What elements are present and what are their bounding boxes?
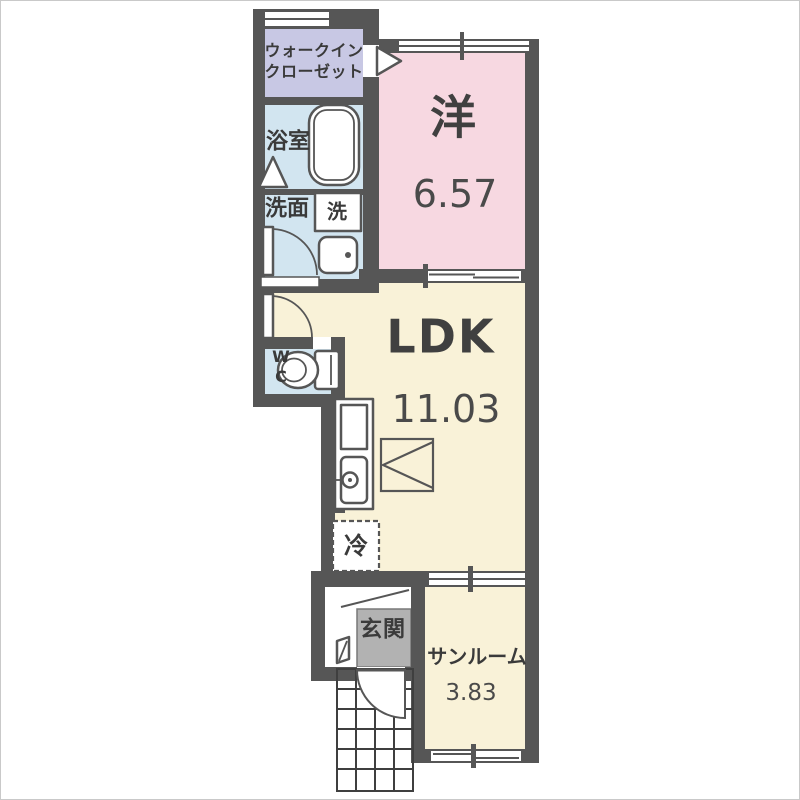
wall	[311, 587, 325, 681]
western-room-area: 6.57	[413, 173, 498, 217]
walk-in-closet-label-line1: ウォークイン	[264, 40, 363, 61]
window-tick	[423, 264, 428, 288]
vanity-faucet-dot	[345, 252, 351, 258]
floorplan: ウォークイン クローゼット 浴室 洗面 洗 洋 6.57 W C LDK 11.…	[0, 0, 800, 800]
western-room	[363, 53, 525, 269]
door-leaf	[263, 294, 273, 338]
toilet-label: W C	[272, 347, 290, 387]
wall	[525, 39, 539, 763]
western-room-label: 洋	[430, 92, 476, 145]
kitchen-stove-box	[341, 405, 367, 449]
wall	[321, 407, 335, 571]
wall	[253, 394, 345, 407]
toilet-label-line1: W	[272, 347, 290, 367]
wall	[253, 97, 379, 105]
washroom-label: 洗面	[265, 196, 309, 221]
toilet-label-line2: C	[272, 367, 290, 387]
vanity-sink-icon	[319, 237, 357, 273]
entrance-label: 玄関	[360, 617, 406, 642]
walk-in-closet-label: ウォークイン クローゼット	[264, 40, 363, 82]
refrigerator-label: 冷	[344, 533, 368, 561]
window-tick	[471, 744, 476, 768]
ldk-label: LDK	[386, 311, 495, 364]
washing-machine-label: 洗	[327, 201, 347, 224]
bathroom-label: 浴室	[266, 129, 310, 154]
faucet-dot	[348, 478, 352, 482]
sliding-door-icon	[427, 271, 521, 281]
window-tick	[460, 32, 464, 60]
door-threshold	[261, 277, 319, 287]
sunroom-area: 3.83	[445, 680, 496, 706]
window-tick	[468, 566, 473, 592]
bathtub-icon	[309, 105, 359, 185]
sunroom-label: サンルーム	[427, 646, 526, 669]
walk-in-closet-label-line2: クローゼット	[264, 61, 363, 82]
ldk-area: 11.03	[392, 388, 501, 432]
door-leaf	[263, 227, 273, 275]
window-end-cap	[329, 10, 335, 28]
